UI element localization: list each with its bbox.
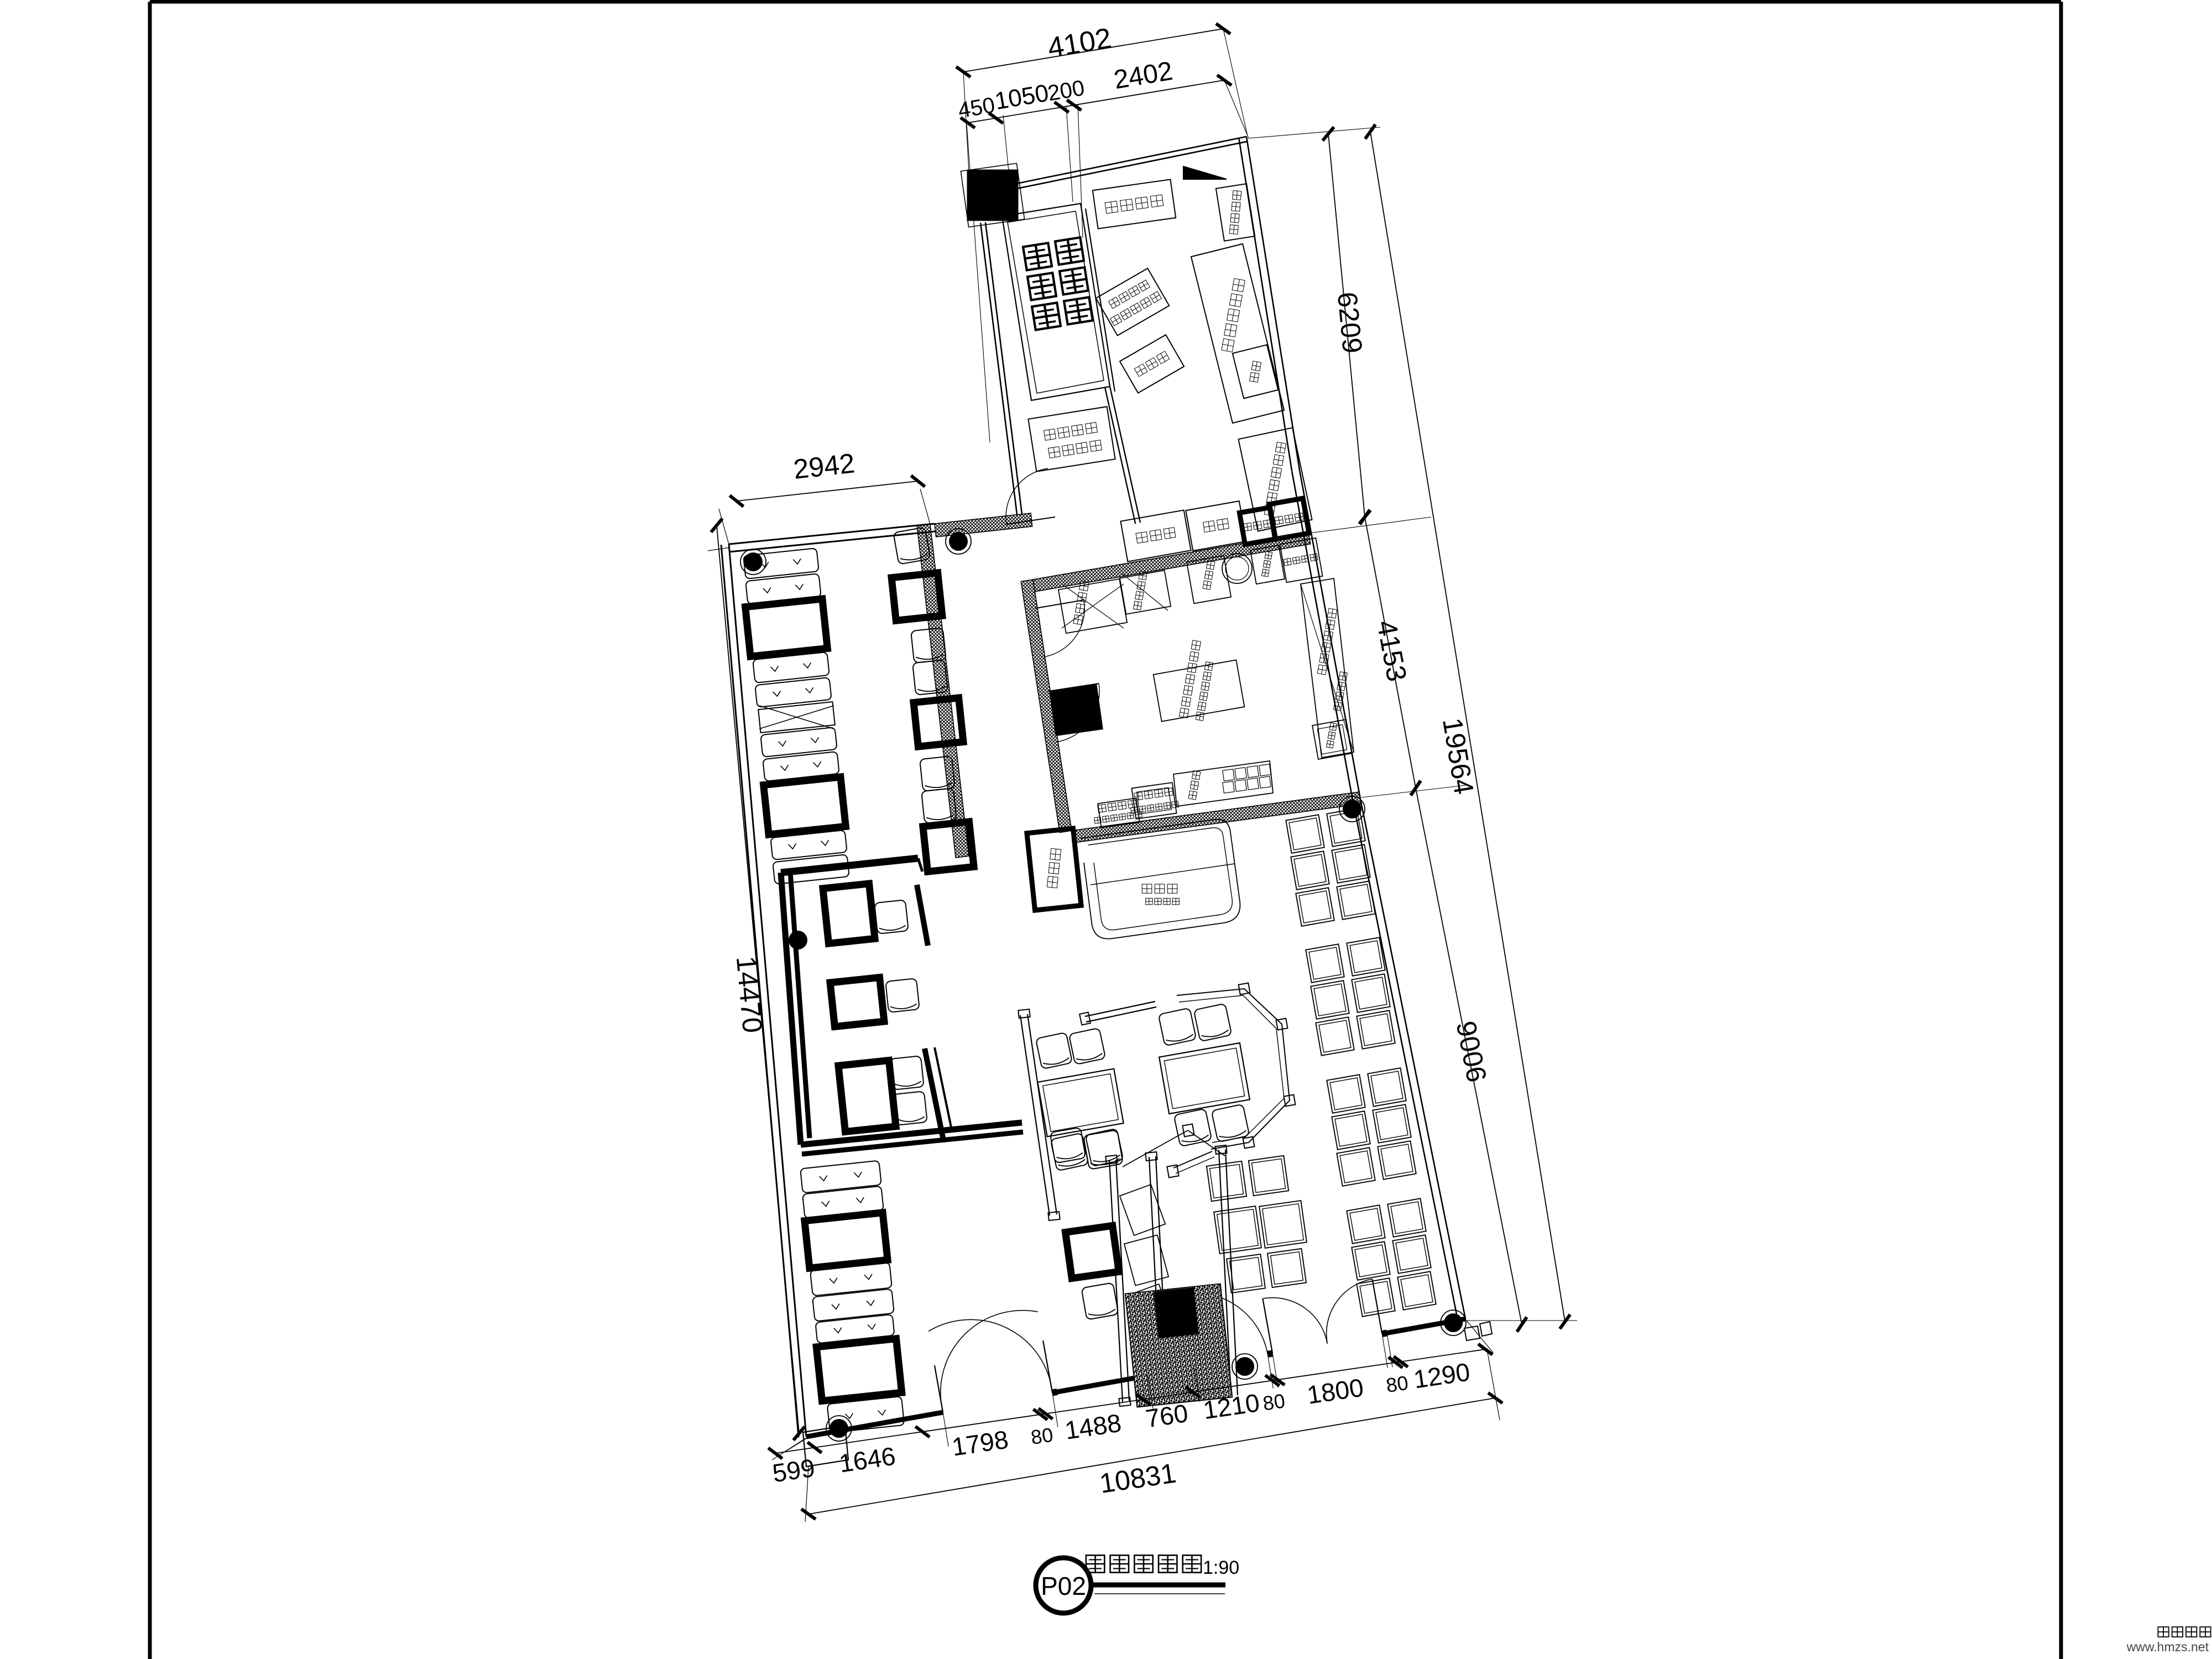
svg-text:P02: P02 [1041,1572,1086,1600]
svg-text:80: 80 [1029,1423,1055,1449]
svg-text:760: 760 [1144,1399,1190,1433]
svg-text:www.hmzs.net: www.hmzs.net [2126,1640,2209,1654]
svg-text:80: 80 [1385,1371,1410,1397]
svg-text:2942: 2942 [792,447,857,485]
svg-text:80: 80 [1261,1389,1287,1415]
svg-text:599: 599 [770,1453,816,1488]
svg-text:6209: 6209 [1332,290,1368,354]
svg-text:1:90: 1:90 [1203,1557,1239,1578]
